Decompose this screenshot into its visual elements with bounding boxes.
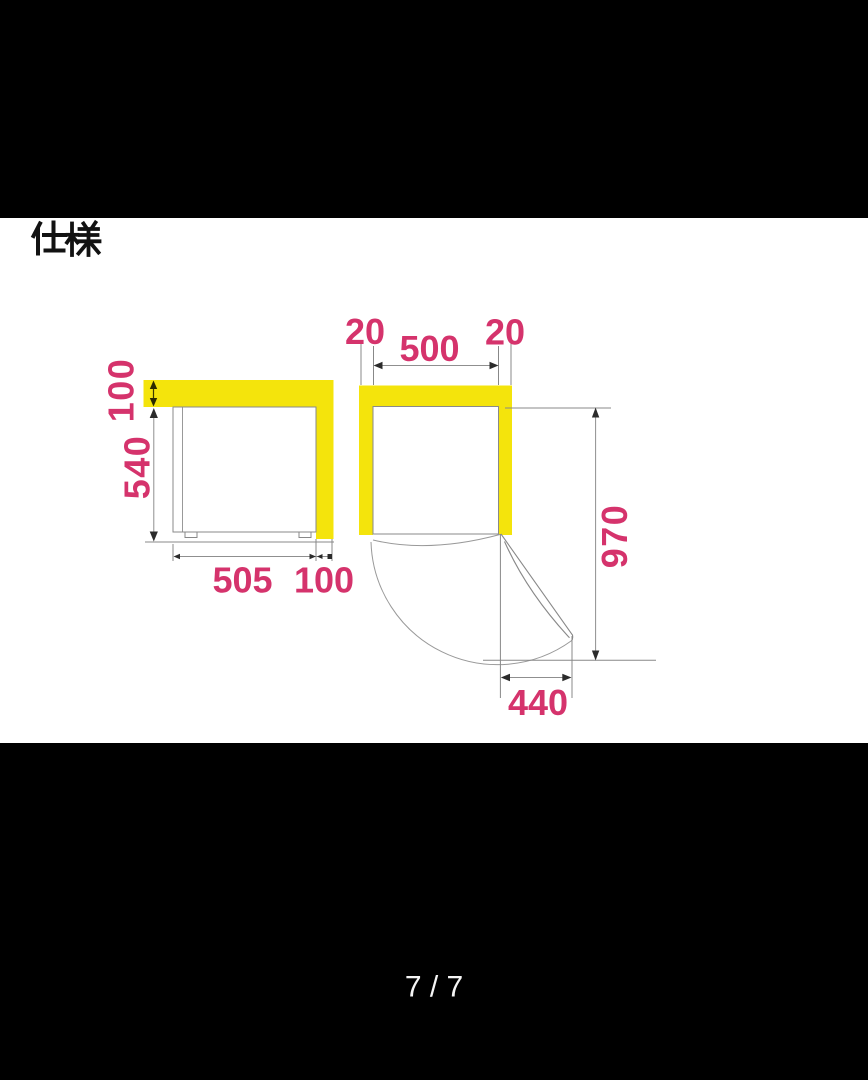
svg-text:100: 100 <box>101 358 142 423</box>
svg-text:20: 20 <box>345 311 385 352</box>
svg-text:7 / 7: 7 / 7 <box>405 971 463 1004</box>
svg-text:440: 440 <box>508 682 568 723</box>
svg-text:540: 540 <box>117 435 158 500</box>
svg-text:100: 100 <box>294 560 354 601</box>
svg-text:505: 505 <box>212 560 272 601</box>
svg-text:500: 500 <box>399 328 459 369</box>
svg-text:970: 970 <box>594 504 635 569</box>
svg-text:20: 20 <box>485 312 525 353</box>
